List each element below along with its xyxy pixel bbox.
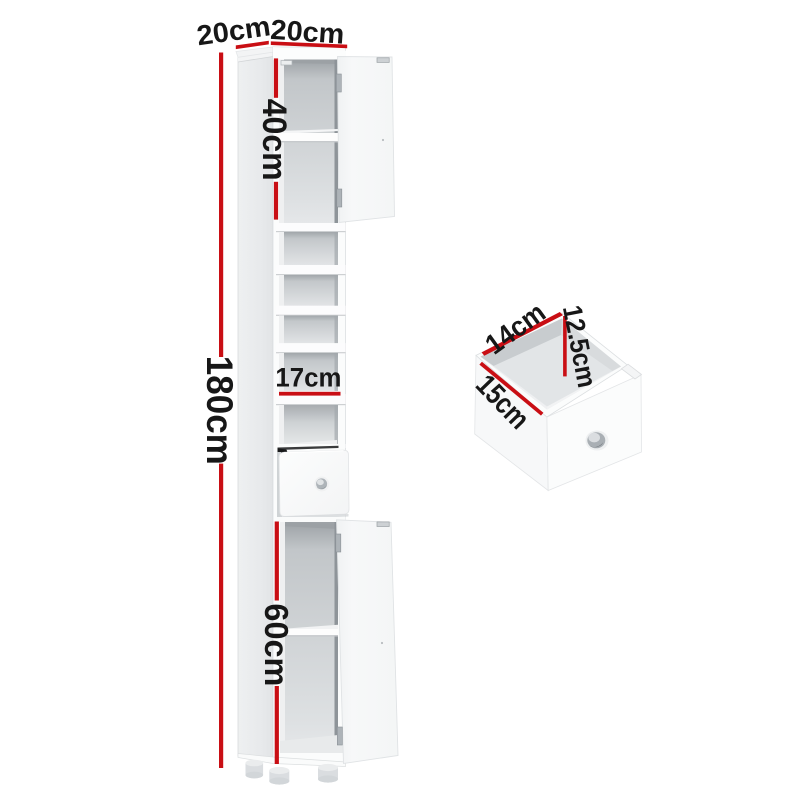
svg-text:60cm: 60cm — [258, 603, 295, 686]
svg-text:180cm: 180cm — [199, 356, 240, 465]
svg-text:40cm: 40cm — [255, 99, 293, 181]
svg-text:17cm: 17cm — [275, 363, 341, 393]
svg-text:20cm: 20cm — [269, 14, 345, 50]
